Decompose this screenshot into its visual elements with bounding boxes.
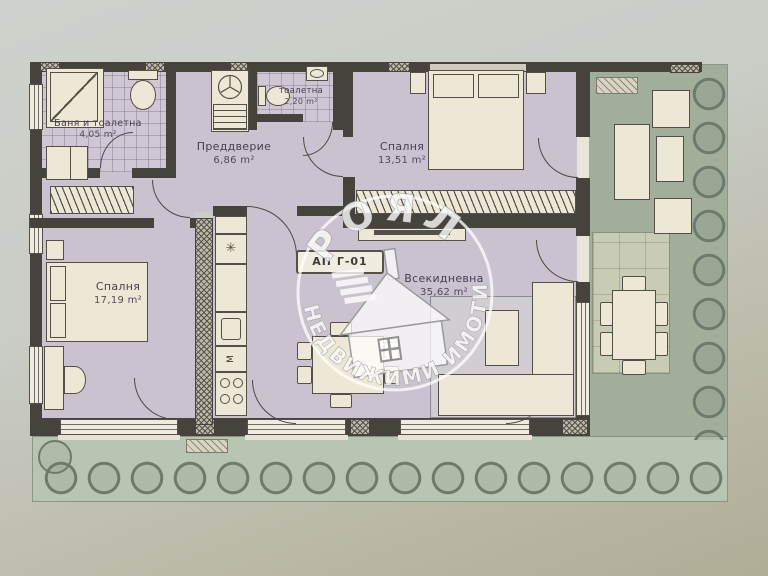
window-living-bottom-a [247,419,346,435]
kitchen-washer: М [215,346,247,372]
wall-shaft-column [195,218,213,425]
terrace-chair-right-2 [655,332,668,356]
wall-hatch-7 [350,419,370,435]
terrace-dining-table [612,290,656,360]
room-name: Спалня [350,140,454,154]
burner-4 [233,394,243,404]
burner-2 [233,378,243,388]
garden-pad [186,439,228,453]
wall-bedroom1-left-a [343,62,353,137]
wall-hatch-4 [388,62,410,72]
kitchen-cabinet-top [215,216,247,234]
wall-right-seg3 [576,282,590,302]
terrace-sofa [614,124,650,200]
garden-bush [38,440,72,474]
agency-watermark: РОЯЛ НЕДВИЖИМИ ИМОТИ [278,172,516,418]
room-area: 13,51 m² [350,154,454,167]
room-label-vestibule: Преддверие 6,86 m² [186,140,282,167]
terrace-coffee-table [656,136,684,182]
terrace-chair-left-1 [600,302,613,326]
kitchen-counter [215,264,247,312]
room-area: 6,86 m² [186,154,282,167]
stairs-detail [332,267,377,305]
window-bedroom2-bottom [60,419,178,435]
washer-label: М [219,344,243,374]
window-bedroom2-left-b [29,346,43,404]
terrace-chair-right-1 [655,302,668,326]
burner-1 [220,378,230,388]
room-name: Преддверие [186,140,282,154]
door-threshold-bedroom1-terrace [577,137,589,178]
room-label-bedroom2: Спалня 17,19 m² [70,280,166,307]
corridor-wardrobe [50,186,134,214]
bedroom2-pillow-top [50,266,66,301]
room-name: тоалетна [270,86,332,97]
fan-icon [214,72,246,102]
fridge-snowflake-icon: ✳ [216,235,246,263]
wall-right-seg2 [576,178,590,236]
door-threshold-living-terrace [577,236,589,282]
wall-hatch-8 [562,419,588,435]
garden-bush-row [40,458,724,498]
wall-toilet-bottom [247,114,303,122]
room-label-toilet: тоалетна 2,20 m² [270,86,332,107]
terrace-armchair-2 [654,198,692,234]
terrace-bush-column [690,72,728,440]
terrace-chair-bottom [622,360,646,375]
wall-hatch-5 [670,64,700,73]
shower-diagonal [50,72,98,122]
burner-3 [220,394,230,404]
toilet1-bowl [130,80,156,110]
window-sill-2 [245,435,348,440]
window-sill-1 [58,435,180,440]
toilet2-sink [306,66,328,81]
wall-bedroom2-top-a [30,218,154,228]
sink-bowl [221,318,241,340]
wall-toilet-right [333,62,343,130]
wall-bathroom-right [166,62,176,176]
bedroom2-desk [44,346,64,410]
fridge: ✳ [215,234,247,264]
bedroom1-nightstand-right [526,72,546,94]
bedroom2-chair [64,366,86,394]
bedroom2-nightstand [46,240,64,260]
kitchen-sink [215,312,247,346]
room-label-bathroom: Баня и тоалетна 4,05 m² [50,118,146,142]
bedroom2-pillow-bottom [50,303,66,338]
room-area: 2,20 m² [270,97,332,107]
window-bathroom-left [29,84,43,130]
bedroom1-pillow-left [433,74,474,98]
room-name: Спалня [70,280,166,294]
sink-basin [310,69,324,78]
vent-shaft-hatch [213,104,247,130]
window-right-living [576,302,590,416]
bedroom1-nightstand-left [410,72,426,94]
kitchen-stove [215,372,247,416]
toilet1-tank [128,70,158,80]
terrace-pad [596,77,638,94]
bedroom1-pillow-right [478,74,519,98]
terrace-chair-left-2 [600,332,613,356]
wall-kitchen-top [213,206,247,216]
terrace-chair-top [622,276,646,291]
room-label-bedroom1: Спалня 13,51 m² [350,140,454,167]
bathroom-cabinet [46,146,88,180]
terrace-armchair-1 [652,90,690,128]
wall-bathroom-bottom-b [132,168,176,178]
window-sill-3 [398,435,532,440]
room-name: Баня и тоалетна [50,118,146,130]
floor-plan-photo: { "plan": { "apartment_id": "АП Г-01", "… [0,0,768,576]
room-area: 17,19 m² [70,294,166,307]
room-area: 4,05 m² [50,130,146,142]
toilet2-tank [258,86,266,106]
wall-right-seg1 [576,62,590,137]
